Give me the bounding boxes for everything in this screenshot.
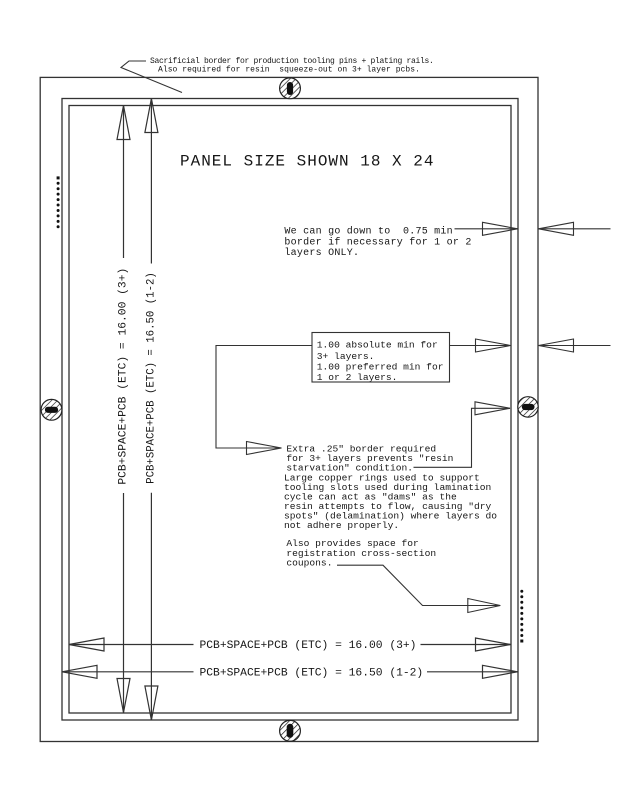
svg-text:1.00 preferred min for: 1.00 preferred min for — [317, 362, 444, 373]
svg-text:border if necessary for 1 or 2: border if necessary for 1 or 2 — [284, 236, 471, 248]
svg-text:Also required for resin squee: Also required for resin squeeze-out on 3… — [158, 66, 420, 75]
svg-text:1.00 absolute min for: 1.00 absolute min for — [317, 340, 438, 351]
svg-text:PCB+SPACE+PCB (ETC) = 16.00 (3: PCB+SPACE+PCB (ETC) = 16.00 (3+) — [118, 268, 130, 485]
svg-text:3+ layers.: 3+ layers. — [317, 351, 375, 362]
svg-text:coupons.: coupons. — [286, 557, 332, 568]
svg-text:We can go down to 0.75 min: We can go down to 0.75 min — [284, 225, 453, 237]
svg-text:not adhere properly.: not adhere properly. — [284, 520, 399, 531]
svg-text:Sacrificial border for product: Sacrificial border for production toolin… — [150, 57, 434, 66]
svg-text:PCB+SPACE+PCB (ETC) = 16.50 (1: PCB+SPACE+PCB (ETC) = 16.50 (1-2) — [200, 667, 424, 679]
svg-text:PCB+SPACE+PCB (ETC) = 16.50 (1: PCB+SPACE+PCB (ETC) = 16.50 (1-2) — [145, 272, 157, 484]
svg-text:layers ONLY.: layers ONLY. — [284, 247, 359, 259]
svg-text:1 or 2 layers.: 1 or 2 layers. — [317, 372, 398, 383]
svg-text:PCB+SPACE+PCB (ETC) = 16.00 (3: PCB+SPACE+PCB (ETC) = 16.00 (3+) — [200, 640, 417, 652]
svg-text:PANEL SIZE SHOWN 18 X 24: PANEL SIZE SHOWN 18 X 24 — [180, 152, 434, 170]
